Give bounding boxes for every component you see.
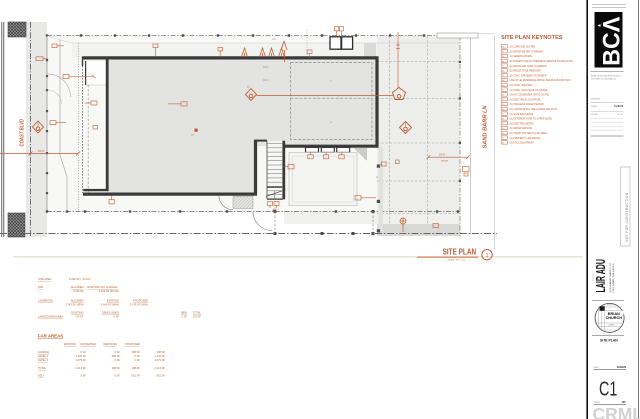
svg-text:PROJECT: PROJECT [593,272,595,281]
svg-text:661 SF: 661 SF [132,374,141,378]
svg-text:1,143 SF: 1,143 SF [154,354,165,358]
svg-text:PROPOSED: PROPOSED [125,342,140,346]
svg-text:DEL MAR, CA 92014: DEL MAR, CA 92014 [612,262,615,292]
svg-text:05: 05 [502,66,504,68]
svg-text:EXISTING: EXISTING [107,299,119,303]
svg-text:LANDSCAPED AREA: LANDSCAPED AREA [38,314,63,318]
svg-text:(N) TRASH AND RECYCLING AREA: (N) TRASH AND RECYCLING AREA [510,132,548,135]
svg-text:DATE: DATE [594,366,600,369]
svg-text:2,413 SF: 2,413 SF [75,366,86,370]
svg-text:FAR: FAR [38,285,43,289]
svg-text:398 SF: 398 SF [112,354,121,358]
svg-text:2,743 SF (45%): 2,743 SF (45%) [65,303,83,307]
svg-text:DEMOLISHED: DEMOLISHED [102,311,119,315]
svg-text:01: 01 [502,46,504,48]
svg-text:2801 STATE ST, CARLSBAD CA: 2801 STATE ST, CARLSBAD CA [591,77,617,80]
svg-text:24'-6": 24'-6" [439,152,446,156]
svg-text:09: 09 [502,85,504,87]
svg-text:ADU: ADU [38,374,44,378]
svg-text:568 SAND BARR LN: 568 SAND BARR LN [609,263,612,293]
svg-text:(N) POOL EQUIPMENT: (N) POOL EQUIPMENT [510,143,535,145]
svg-text:398 SF: 398 SF [157,350,166,354]
svg-text:(N) LANDSCAPING, SEE LANDSCAPE: (N) LANDSCAPING, SEE LANDSCAPE PLAN [510,108,558,111]
svg-text:SITE PLAN KEYNOTES: SITE PLAN KEYNOTES [501,35,563,41]
svg-text:11.30.23: 11.30.23 [614,106,624,108]
svg-text:SCALE: 1/8" = 1'-0": SCALE: 1/8" = 1'-0" [448,259,466,262]
svg-text:ISSUE: ISSUE [591,106,598,108]
svg-text:2,440 SF: 2,440 SF [73,289,84,293]
svg-text:(E) WATER METER TO REMAIN: (E) WATER METER TO REMAIN [510,50,544,53]
svg-text:BCΛ: BCΛ [599,17,626,66]
svg-text:14: 14 [502,109,504,111]
svg-text:(N) PROPERTY LINE FENCE: (N) PROPERTY LINE FENCE [510,138,541,140]
svg-text:(N) EXTERIOR STAIR TO UPPER LE: (N) EXTERIOR STAIR TO UPPER LEVEL [510,118,554,121]
svg-text:TOTAL: TOTAL [193,311,202,315]
svg-text:LINE OF (E) RESIDENCE ABOVE, S: LINE OF (E) RESIDENCE ABOVE, SEE PLANS F… [510,79,571,82]
svg-text:LEVEL 1: LEVEL 1 [38,354,49,358]
svg-text:DEMOLISH: DEMOLISH [103,342,117,346]
svg-text:NOT FOR CONSTRUCTION: NOT FOR CONSTRUCTION [625,192,629,242]
svg-text:CRMLS: CRMLS [593,404,640,419]
svg-text:(E) CONC. DRIVEWAY TO REMAIN: (E) CONC. DRIVEWAY TO REMAIN [510,74,547,77]
svg-text:SITE PLAN: SITE PLAN [443,247,477,257]
svg-text:2,439 SF (39.9%): 2,439 SF (39.9%) [99,289,119,293]
svg-text:1: 1 [486,253,489,259]
svg-text:398 SF: 398 SF [132,350,141,354]
svg-text:02: 02 [502,51,504,53]
svg-text:NEW: NEW [181,311,188,315]
svg-text:TOTAL: TOTAL [38,366,47,370]
svg-text:(N) CONC. PATIO SLAB ON GRADE: (N) CONC. PATIO SLAB ON GRADE [510,89,548,92]
svg-text:21: 21 [502,142,504,144]
svg-text:0 SF: 0 SF [182,314,188,318]
svg-text:SETBK: SETBK [441,161,449,163]
svg-text:CHURCH: CHURCH [606,316,623,320]
svg-text:GARAGE: GARAGE [38,350,49,354]
svg-text:07: 07 [502,75,504,77]
svg-text:0 SF: 0 SF [81,350,87,354]
svg-text:BRIAN CHURCH ARCHITECTURE INC: BRIAN CHURCH ARCHITECTURE INC [591,75,622,78]
svg-text:0 SF: 0 SF [114,314,120,318]
svg-text:0 SF: 0 SF [135,358,141,362]
svg-text:6,098 SF ( .14 AC): 6,098 SF ( .14 AC) [69,277,91,281]
svg-text:17: 17 [502,123,504,125]
svg-text:0 SF: 0 SF [115,350,121,354]
svg-text:COAST BLVD: COAST BLVD [20,119,26,147]
svg-text:710 SF: 710 SF [193,314,202,318]
svg-text:08: 08 [502,80,504,82]
svg-text:04: 04 [502,61,504,63]
svg-text:CONVERTED: CONVERTED [80,342,96,346]
svg-text:(N) GATE AND FENCE: (N) GATE AND FENCE [510,113,534,116]
svg-text:16: 16 [502,118,504,120]
svg-text:1,334 SF: 1,334 SF [75,354,86,358]
svg-text:FAR AREAS: FAR AREAS [38,333,63,338]
svg-text:C1: C1 [599,377,617,400]
svg-text:398 SF: 398 SF [132,366,141,370]
svg-text:11: 11 [502,94,504,96]
svg-text:LEVEL 2: LEVEL 2 [38,358,49,362]
svg-text:0 SF: 0 SF [135,354,141,358]
svg-text:20: 20 [502,138,504,140]
svg-text:(N) A/C CONDENSER UNITS ON PAD: (N) A/C CONDENSER UNITS ON PAD [510,94,550,97]
svg-text:9040: 9040 [263,66,269,69]
svg-text:(E) POWER POLE W/ OVERHEAD SER: (E) POWER POLE W/ OVERHEAD SERVICE TO RE… [510,60,574,63]
svg-text:25'-0": 25'-0" [38,149,45,153]
svg-text:11/30/23: 11/30/23 [617,366,627,369]
svg-text:SAND BARR LN: SAND BARR LN [483,105,489,148]
svg-text:18: 18 [502,128,504,130]
svg-text:PROPOSED: PROPOSED [133,299,148,303]
svg-text:(N) WATER SERVICE: (N) WATER SERVICE [510,127,533,130]
svg-text:15: 15 [502,114,504,116]
svg-text:2,413 SF: 2,413 SF [154,366,165,370]
svg-text:EXISTING (NO CHANGE): EXISTING (NO CHANGE) [88,285,118,289]
svg-text:(N) TANKLESS WATER HEATER: (N) TANKLESS WATER HEATER [510,103,544,106]
svg-text:10: 10 [502,90,504,92]
svg-text:1,079 SF: 1,079 SF [154,358,165,362]
svg-text:ALLOWED: ALLOWED [71,285,84,289]
svg-text:MM: MM [272,39,276,41]
svg-text:REVISIONS: REVISIONS [591,99,601,101]
svg-text:9040: 9040 [263,79,269,82]
svg-text:(N) ELECTRIC METER: (N) ELECTRIC METER [510,123,534,125]
svg-text:1.15.24: 1.15.24 [617,114,623,116]
svg-text:(E) CURB AND GUTTER: (E) CURB AND GUTTER [510,46,536,49]
svg-text:0 SF: 0 SF [115,358,121,362]
svg-text:12: 12 [502,99,504,101]
svg-text:06: 06 [502,70,504,72]
svg-text:661 SF: 661 SF [157,374,166,378]
svg-text:710 SF: 710 SF [75,314,84,318]
svg-text:0 SF: 0 SF [115,374,121,378]
svg-text:EXISTING: EXISTING [64,342,76,346]
svg-text:LAIR ADU: LAIR ADU [593,259,608,293]
svg-text:SITE AREA: SITE AREA [38,277,52,281]
svg-text:2,743 SF (45%): 2,743 SF (45%) [130,303,148,307]
svg-text:1,079 SF: 1,079 SF [75,358,86,362]
svg-text:398 SF: 398 SF [112,366,121,370]
svg-text:(E) FENCE AND GATE TO REMAIN: (E) FENCE AND GATE TO REMAIN [510,65,547,68]
svg-text:19: 19 [502,133,504,135]
svg-text:EXISTING: EXISTING [71,311,83,315]
svg-text:ARCHITECT: ARCHITECT [607,303,617,306]
svg-text:(E) SEWER LATERAL: (E) SEWER LATERAL [510,55,534,58]
svg-text:(N) ELECTRICAL SUB PANEL: (N) ELECTRICAL SUB PANEL [510,98,542,101]
svg-text:(N) CONC. WALKWAY: (N) CONC. WALKWAY [510,84,534,87]
svg-text:SITE PLAN: SITE PLAN [600,339,618,343]
svg-text:ALLOWED: ALLOWED [71,299,84,303]
svg-text:03: 03 [502,56,504,58]
svg-text:COVERAGE: COVERAGE [38,299,53,303]
svg-text:13: 13 [502,104,504,106]
svg-text:C-33616: C-33616 [608,325,615,327]
svg-text:2,440 SF (40%): 2,440 SF (40%) [101,303,119,307]
svg-text:PERMIT: PERMIT [591,114,599,116]
svg-text:0 SF: 0 SF [81,374,87,378]
svg-text:(E) FENCE TO BE REMOVED: (E) FENCE TO BE REMOVED [510,71,542,73]
